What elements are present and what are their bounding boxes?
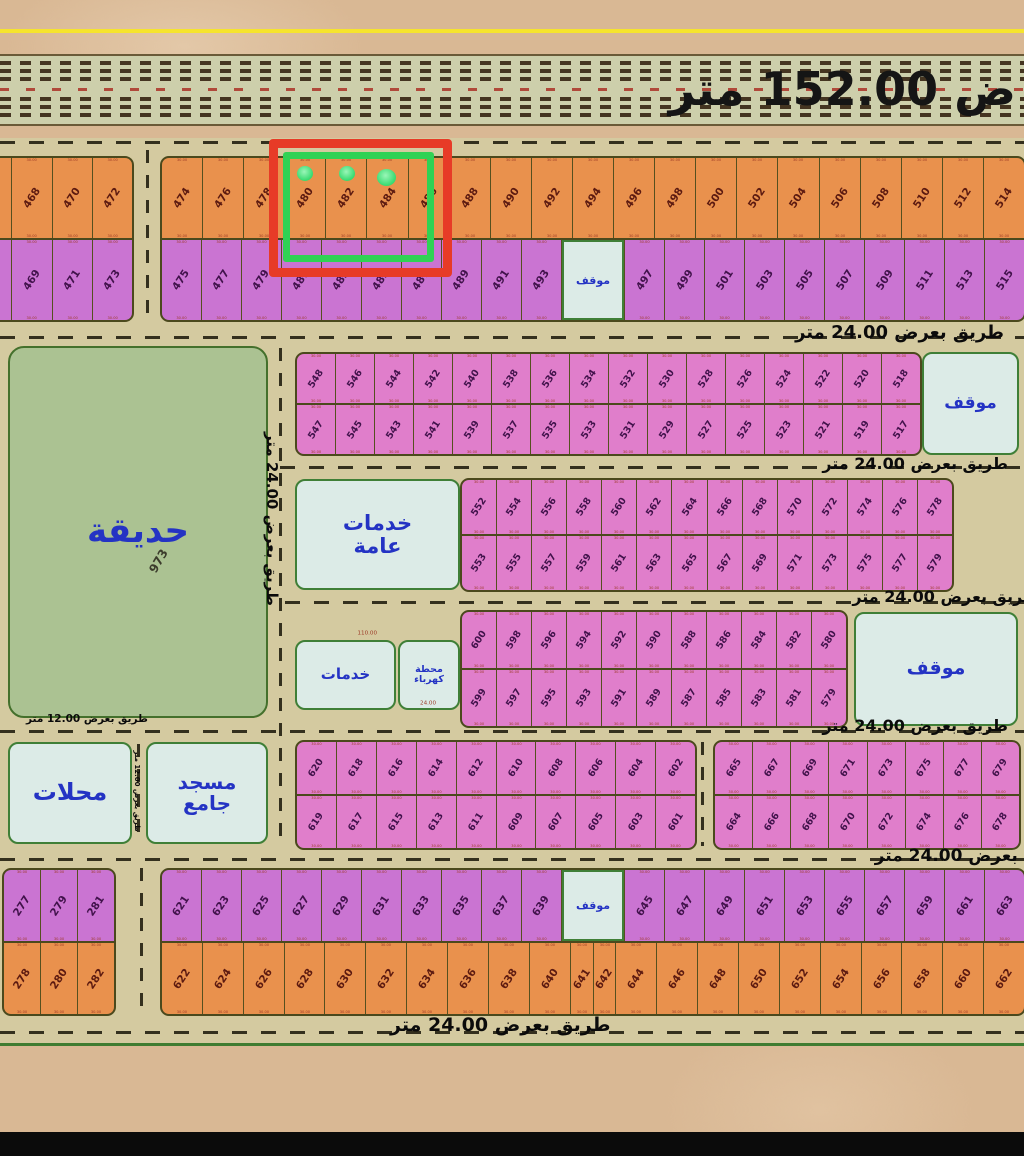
plot-594[interactable]: 30.0059430.00 bbox=[567, 612, 602, 668]
plot-543[interactable]: 30.0054330.00 bbox=[375, 405, 414, 454]
plot-555[interactable]: 30.0055530.00 bbox=[497, 536, 532, 590]
plot-506[interactable]: 30.0050630.00 bbox=[820, 158, 861, 238]
plot-629[interactable]: 30.0062930.00 bbox=[322, 870, 362, 941]
plot-620[interactable]: 30.0062030.00 bbox=[297, 742, 337, 794]
plot-469[interactable]: 30.0046930.00 bbox=[12, 240, 52, 320]
plot-number: 556 bbox=[539, 496, 559, 519]
plot-dimension: 30.00 bbox=[250, 316, 273, 320]
plot-edge[interactable]: 30.0030.00 bbox=[0, 158, 12, 238]
plot-547[interactable]: 30.0054730.00 bbox=[297, 405, 336, 454]
plot-row: 30.0062130.0030.0062330.0030.0062530.003… bbox=[162, 870, 1024, 943]
plot-596[interactable]: 30.0059630.00 bbox=[532, 612, 567, 668]
plot-dimension: 30.00 bbox=[749, 612, 769, 616]
plot-dimension: 30.00 bbox=[812, 399, 835, 403]
plot-number: 633 bbox=[410, 893, 432, 918]
plot-number: 644 bbox=[625, 966, 647, 991]
plot-536[interactable]: 30.0053630.00 bbox=[531, 354, 570, 403]
plot-dimension: 30.00 bbox=[490, 937, 513, 941]
plot-616[interactable]: 30.0061630.00 bbox=[377, 742, 417, 794]
plot-560[interactable]: 30.0056030.00 bbox=[602, 480, 637, 534]
plot-row: 30.0054730.0030.0054530.0030.0054330.003… bbox=[297, 405, 920, 454]
plot-545[interactable]: 30.0054530.00 bbox=[336, 405, 375, 454]
plot-dimension: 30.00 bbox=[0, 234, 3, 238]
plot-552[interactable]: 30.0055230.00 bbox=[462, 480, 497, 534]
plot-number: 507 bbox=[834, 268, 856, 293]
plot-589[interactable]: 30.0058930.00 bbox=[637, 670, 672, 726]
plot-dimension: 30.00 bbox=[951, 796, 973, 800]
plot-518[interactable]: 30.0051830.00 bbox=[882, 354, 920, 403]
plot-558[interactable]: 30.0055830.00 bbox=[567, 480, 602, 534]
plot-675[interactable]: 30.0067530.00 bbox=[906, 742, 944, 794]
plot-649[interactable]: 30.0064930.00 bbox=[705, 870, 745, 941]
plot-538[interactable]: 30.0053830.00 bbox=[492, 354, 531, 403]
plot-number: 629 bbox=[330, 893, 352, 918]
plot-496[interactable]: 30.0049630.00 bbox=[614, 158, 655, 238]
plot-548[interactable]: 30.0054830.00 bbox=[297, 354, 336, 403]
plot-number: 278 bbox=[11, 966, 33, 991]
plot-642[interactable]: 30.0064230.00 bbox=[594, 943, 617, 1014]
parking-area[interactable]: موقف bbox=[562, 870, 625, 941]
plot-546[interactable]: 30.0054630.00 bbox=[336, 354, 375, 403]
plot-612[interactable]: 30.0061230.00 bbox=[457, 742, 497, 794]
plot-621[interactable]: 30.0062130.00 bbox=[162, 870, 202, 941]
plot-678[interactable]: 30.0067830.00 bbox=[982, 796, 1019, 848]
plot-dimension: 30.00 bbox=[784, 612, 804, 616]
plot-646[interactable]: 30.0064630.00 bbox=[657, 943, 698, 1014]
plot-501[interactable]: 30.0050130.00 bbox=[705, 240, 745, 320]
power-station-area[interactable]: محطة كهرباء 24.00 bbox=[398, 640, 460, 710]
plot-522[interactable]: 30.0052230.00 bbox=[804, 354, 843, 403]
plot-659[interactable]: 30.0065930.00 bbox=[905, 870, 945, 941]
plot-dimension: 30.00 bbox=[722, 790, 744, 794]
plot-650[interactable]: 30.0065030.00 bbox=[739, 943, 780, 1014]
plot-number: 281 bbox=[85, 893, 107, 918]
plot-505[interactable]: 30.0050530.00 bbox=[785, 240, 825, 320]
services-area[interactable]: خدمات bbox=[295, 640, 396, 710]
plot-655[interactable]: 30.0065530.00 bbox=[825, 870, 865, 941]
plot-567[interactable]: 30.0056730.00 bbox=[708, 536, 743, 590]
plot-627[interactable]: 30.0062730.00 bbox=[282, 870, 322, 941]
plot-625[interactable]: 30.0062530.00 bbox=[242, 870, 282, 941]
plot-488[interactable]: 30.0048830.00 bbox=[450, 158, 491, 238]
plot-656[interactable]: 30.0065630.00 bbox=[862, 943, 903, 1014]
plot-dimension: 30.00 bbox=[925, 480, 945, 484]
plot-477[interactable]: 30.0047730.00 bbox=[202, 240, 242, 320]
plot-dimension: 30.00 bbox=[786, 234, 810, 238]
plot-677[interactable]: 30.0067730.00 bbox=[944, 742, 982, 794]
plot-dimension: 30.00 bbox=[211, 234, 235, 238]
plot-row: 30.0066530.0030.0066730.0030.0066930.003… bbox=[715, 742, 1019, 796]
plot-498[interactable]: 30.0049830.00 bbox=[655, 158, 696, 238]
plot-581[interactable]: 30.0058130.00 bbox=[777, 670, 812, 726]
plot-dimension: 30.00 bbox=[785, 480, 805, 484]
plot-580[interactable]: 30.0058030.00 bbox=[812, 612, 846, 668]
plot-553[interactable]: 30.0055330.00 bbox=[462, 536, 497, 590]
plot-282[interactable]: 30.0028230.00 bbox=[78, 943, 114, 1014]
plot-540[interactable]: 30.0054030.00 bbox=[453, 354, 492, 403]
plot-490[interactable]: 30.0049030.00 bbox=[491, 158, 532, 238]
plot-number: 612 bbox=[466, 757, 486, 780]
plot-509[interactable]: 30.0050930.00 bbox=[865, 240, 905, 320]
plot-dimension: 30.00 bbox=[713, 870, 736, 874]
plot-653[interactable]: 30.0065330.00 bbox=[785, 870, 825, 941]
plot-665[interactable]: 30.0066530.00 bbox=[715, 742, 753, 794]
plot-557[interactable]: 30.0055730.00 bbox=[532, 536, 567, 590]
plot-281[interactable]: 30.0028130.00 bbox=[78, 870, 114, 941]
plot-number: 590 bbox=[644, 629, 664, 652]
plot-595[interactable]: 30.0059530.00 bbox=[532, 670, 567, 726]
plot-663[interactable]: 30.0066330.00 bbox=[985, 870, 1024, 941]
plot-dimension: 30.00 bbox=[581, 158, 605, 162]
plot-634[interactable]: 30.0063430.00 bbox=[407, 943, 448, 1014]
plot-dimension: 30.00 bbox=[722, 844, 744, 848]
plot-dimension: 30.00 bbox=[290, 316, 313, 320]
shops-area[interactable]: محلات bbox=[8, 742, 132, 844]
power-dimension: 24.00 bbox=[420, 700, 436, 706]
plot-468[interactable]: 30.0046830.00 bbox=[12, 158, 52, 238]
plot-662[interactable]: 30.0066230.00 bbox=[984, 943, 1024, 1014]
plot-521[interactable]: 30.0052130.00 bbox=[804, 405, 843, 454]
plot-277[interactable]: 30.0027730.00 bbox=[4, 870, 41, 941]
plot-648[interactable]: 30.0064830.00 bbox=[698, 943, 739, 1014]
plot-559[interactable]: 30.0055930.00 bbox=[567, 536, 602, 590]
plot-654[interactable]: 30.0065430.00 bbox=[821, 943, 862, 1014]
plot-565[interactable]: 30.0056530.00 bbox=[672, 536, 707, 590]
plot-592[interactable]: 30.0059230.00 bbox=[602, 612, 637, 668]
plot-number: 598 bbox=[504, 629, 524, 652]
plot-502[interactable]: 30.0050230.00 bbox=[737, 158, 778, 238]
plot-number: 603 bbox=[626, 811, 646, 834]
plot-630[interactable]: 30.0063030.00 bbox=[325, 943, 366, 1014]
plot-dimension: 30.00 bbox=[953, 937, 976, 941]
plot-dimension: 30.00 bbox=[617, 399, 640, 403]
plot-572[interactable]: 30.0057230.00 bbox=[813, 480, 848, 534]
plot-539[interactable]: 30.0053930.00 bbox=[453, 405, 492, 454]
plot-number: 669 bbox=[800, 757, 820, 780]
plot-515[interactable]: 30.0051530.00 bbox=[985, 240, 1024, 320]
plot-number: 584 bbox=[749, 629, 769, 652]
plot-dimension: 30.00 bbox=[624, 796, 647, 800]
plot-566[interactable]: 30.0056630.00 bbox=[708, 480, 743, 534]
plot-520[interactable]: 30.0052030.00 bbox=[843, 354, 882, 403]
plot-dimension: 30.00 bbox=[753, 937, 776, 941]
plot-500[interactable]: 30.0050030.00 bbox=[696, 158, 737, 238]
plot-658[interactable]: 30.0065830.00 bbox=[902, 943, 943, 1014]
plot-511[interactable]: 30.0051130.00 bbox=[905, 240, 945, 320]
plot-541[interactable]: 30.0054130.00 bbox=[414, 405, 453, 454]
plot-dimension: 30.00 bbox=[170, 158, 194, 162]
plot-618[interactable]: 30.0061830.00 bbox=[337, 742, 377, 794]
plot-562[interactable]: 30.0056230.00 bbox=[637, 480, 672, 534]
plot-636[interactable]: 30.0063630.00 bbox=[448, 943, 489, 1014]
plot-523[interactable]: 30.0052330.00 bbox=[765, 405, 804, 454]
mosque-area[interactable]: مسجد جامع bbox=[146, 742, 268, 844]
plot-493[interactable]: 30.0049330.00 bbox=[522, 240, 562, 320]
plot-number: 524 bbox=[774, 367, 794, 390]
plot-number: 646 bbox=[666, 966, 688, 991]
plot-623[interactable]: 30.0062330.00 bbox=[202, 870, 242, 941]
plot-dimension: 30.00 bbox=[622, 234, 646, 238]
plot-673[interactable]: 30.0067330.00 bbox=[868, 742, 906, 794]
plot-number: 537 bbox=[501, 418, 521, 441]
plot-528[interactable]: 30.0052830.00 bbox=[687, 354, 726, 403]
plot-640[interactable]: 30.0064030.00 bbox=[530, 943, 571, 1014]
plot-475[interactable]: 30.0047530.00 bbox=[162, 240, 202, 320]
plot-626[interactable]: 30.0062630.00 bbox=[244, 943, 285, 1014]
plot-668[interactable]: 30.0066830.00 bbox=[791, 796, 829, 848]
plot-512[interactable]: 30.0051230.00 bbox=[943, 158, 984, 238]
plot-number: 600 bbox=[469, 629, 489, 652]
plot-494[interactable]: 30.0049430.00 bbox=[573, 158, 614, 238]
plot-474[interactable]: 30.0047430.00 bbox=[162, 158, 203, 238]
plot-619[interactable]: 30.0061930.00 bbox=[297, 796, 337, 848]
plot-617[interactable]: 30.0061730.00 bbox=[337, 796, 377, 848]
plot-666[interactable]: 30.0066630.00 bbox=[753, 796, 791, 848]
plot-588[interactable]: 30.0058830.00 bbox=[672, 612, 707, 668]
park-area[interactable]: حديقة 973 bbox=[8, 346, 268, 718]
parking-area[interactable]: موقف bbox=[922, 352, 1019, 455]
plot-dimension: 30.00 bbox=[461, 354, 484, 358]
public-services-area[interactable]: خدمات عامة bbox=[295, 479, 460, 590]
plot-568[interactable]: 30.0056830.00 bbox=[743, 480, 778, 534]
plot-number: 567 bbox=[715, 552, 735, 575]
plot-578[interactable]: 30.0057830.00 bbox=[918, 480, 952, 534]
parking-area[interactable]: موقف bbox=[562, 240, 625, 320]
plot-530[interactable]: 30.0053030.00 bbox=[648, 354, 687, 403]
plot-dimension: 30.00 bbox=[624, 1010, 648, 1014]
plot-628[interactable]: 30.0062830.00 bbox=[285, 943, 326, 1014]
plot-517[interactable]: 30.0051730.00 bbox=[882, 405, 920, 454]
plot-582[interactable]: 30.0058230.00 bbox=[777, 612, 812, 668]
plot-556[interactable]: 30.0055630.00 bbox=[532, 480, 567, 534]
plot-651[interactable]: 30.0065130.00 bbox=[745, 870, 785, 941]
plot-491[interactable]: 30.0049130.00 bbox=[482, 240, 522, 320]
plot-524[interactable]: 30.0052430.00 bbox=[765, 354, 804, 403]
plot-529[interactable]: 30.0052930.00 bbox=[648, 405, 687, 454]
plot-613[interactable]: 30.0061330.00 bbox=[417, 796, 457, 848]
plot-671[interactable]: 30.0067130.00 bbox=[829, 742, 867, 794]
plot-591[interactable]: 30.0059130.00 bbox=[602, 670, 637, 726]
plot-527[interactable]: 30.0052730.00 bbox=[687, 405, 726, 454]
plot-280[interactable]: 30.0028030.00 bbox=[41, 943, 78, 1014]
plot-570[interactable]: 30.0057030.00 bbox=[778, 480, 813, 534]
plot-499[interactable]: 30.0049930.00 bbox=[665, 240, 705, 320]
plot-615[interactable]: 30.0061530.00 bbox=[377, 796, 417, 848]
plot-503[interactable]: 30.0050330.00 bbox=[745, 240, 785, 320]
plot-647[interactable]: 30.0064730.00 bbox=[665, 870, 705, 941]
plot-532[interactable]: 30.0053230.00 bbox=[609, 354, 648, 403]
plot-607[interactable]: 30.0060730.00 bbox=[536, 796, 576, 848]
plot-472[interactable]: 30.0047230.00 bbox=[93, 158, 132, 238]
plot-601[interactable]: 30.0060130.00 bbox=[656, 796, 695, 848]
plot-497[interactable]: 30.0049730.00 bbox=[625, 240, 665, 320]
plot-dimension: 30.00 bbox=[469, 722, 489, 726]
plot-575[interactable]: 30.0057530.00 bbox=[848, 536, 883, 590]
plot-635[interactable]: 30.0063530.00 bbox=[442, 870, 482, 941]
plot-473[interactable]: 30.0047330.00 bbox=[93, 240, 132, 320]
plot-534[interactable]: 30.0053430.00 bbox=[570, 354, 609, 403]
plot-510[interactable]: 30.0051030.00 bbox=[902, 158, 943, 238]
plot-508[interactable]: 30.0050830.00 bbox=[861, 158, 902, 238]
plot-dimension: 30.00 bbox=[0, 158, 3, 162]
plot-number: 568 bbox=[750, 496, 770, 519]
plot-674[interactable]: 30.0067430.00 bbox=[906, 796, 944, 848]
plot-dimension: 30.00 bbox=[873, 937, 896, 941]
plot-631[interactable]: 30.0063130.00 bbox=[362, 870, 402, 941]
plot-609[interactable]: 30.0060930.00 bbox=[497, 796, 537, 848]
plot-526[interactable]: 30.0052630.00 bbox=[726, 354, 765, 403]
plot-577[interactable]: 30.0057730.00 bbox=[883, 536, 918, 590]
plot-507[interactable]: 30.0050730.00 bbox=[825, 240, 865, 320]
plot-dimension: 30.00 bbox=[539, 405, 562, 409]
parking-area[interactable]: موقف bbox=[854, 612, 1018, 726]
plot-587[interactable]: 30.0058730.00 bbox=[672, 670, 707, 726]
plot-652[interactable]: 30.0065230.00 bbox=[780, 943, 821, 1014]
plot-638[interactable]: 30.0063830.00 bbox=[489, 943, 530, 1014]
plot-dimension: 30.00 bbox=[673, 937, 696, 941]
plot-513[interactable]: 30.0051330.00 bbox=[945, 240, 985, 320]
plot-number: 472 bbox=[101, 186, 123, 211]
plot-633[interactable]: 30.0063330.00 bbox=[402, 870, 442, 941]
plot-number: 572 bbox=[820, 496, 840, 519]
plot-dimension: 30.00 bbox=[101, 158, 125, 162]
plot-number: 658 bbox=[911, 966, 933, 991]
plot-544[interactable]: 30.0054430.00 bbox=[375, 354, 414, 403]
plot-637[interactable]: 30.0063730.00 bbox=[482, 870, 522, 941]
plot-dimension: 30.00 bbox=[875, 790, 897, 794]
plot-639[interactable]: 30.0063930.00 bbox=[522, 870, 562, 941]
plot-641[interactable]: 30.0064130.00 bbox=[571, 943, 594, 1014]
plot-590[interactable]: 30.0059030.00 bbox=[637, 612, 672, 668]
plot-dimension: 30.00 bbox=[539, 399, 562, 403]
plot-569[interactable]: 30.0056930.00 bbox=[743, 536, 778, 590]
plot-605[interactable]: 30.0060530.00 bbox=[576, 796, 616, 848]
plot-dimension: 30.00 bbox=[679, 612, 699, 616]
plot-669[interactable]: 30.0066930.00 bbox=[791, 742, 829, 794]
plot-dimension: 30.00 bbox=[85, 943, 107, 947]
plot-576[interactable]: 30.0057630.00 bbox=[883, 480, 918, 534]
plot-586[interactable]: 30.0058630.00 bbox=[707, 612, 742, 668]
plot-533[interactable]: 30.0053330.00 bbox=[570, 405, 609, 454]
plot-644[interactable]: 30.0064430.00 bbox=[616, 943, 657, 1014]
plot-604[interactable]: 30.0060430.00 bbox=[616, 742, 656, 794]
plot-614[interactable]: 30.0061430.00 bbox=[417, 742, 457, 794]
plot-602[interactable]: 30.0060230.00 bbox=[656, 742, 695, 794]
plot-661[interactable]: 30.0066130.00 bbox=[945, 870, 985, 941]
plot-564[interactable]: 30.0056430.00 bbox=[672, 480, 707, 534]
plot-676[interactable]: 30.0067630.00 bbox=[944, 796, 982, 848]
plot-471[interactable]: 30.0047130.00 bbox=[53, 240, 93, 320]
plot-525[interactable]: 30.0052530.00 bbox=[726, 405, 765, 454]
plot-535[interactable]: 30.0053530.00 bbox=[531, 405, 570, 454]
plot-dimension: 30.00 bbox=[450, 316, 473, 320]
plot-624[interactable]: 30.0062430.00 bbox=[203, 943, 244, 1014]
plot-dimension: 30.00 bbox=[170, 870, 193, 874]
plot-679[interactable]: 30.0067930.00 bbox=[982, 742, 1019, 794]
plot-dimension: 30.00 bbox=[499, 234, 523, 238]
plot-593[interactable]: 30.0059330.00 bbox=[567, 670, 602, 726]
plot-583[interactable]: 30.0058330.00 bbox=[742, 670, 777, 726]
plot-number: 652 bbox=[789, 966, 811, 991]
plot-585[interactable]: 30.0058530.00 bbox=[707, 670, 742, 726]
plot-edge[interactable]: 30.0030.00 bbox=[0, 240, 12, 320]
plot-660[interactable]: 30.0066030.00 bbox=[943, 943, 984, 1014]
plot-dimension: 30.00 bbox=[870, 1010, 894, 1014]
plot-number: 548 bbox=[306, 367, 326, 390]
plot-606[interactable]: 30.0060630.00 bbox=[576, 742, 616, 794]
plot-dimension: 30.00 bbox=[170, 1010, 194, 1014]
plot-608[interactable]: 30.0060830.00 bbox=[536, 742, 576, 794]
plot-514[interactable]: 30.0051430.00 bbox=[984, 158, 1024, 238]
block-5b: 30.0066530.0030.0066730.0030.0066930.003… bbox=[713, 740, 1021, 850]
plot-573[interactable]: 30.0057330.00 bbox=[813, 536, 848, 590]
plot-dimension: 30.00 bbox=[773, 405, 796, 409]
plot-dimension: 30.00 bbox=[951, 943, 975, 947]
plot-279[interactable]: 30.0027930.00 bbox=[41, 870, 78, 941]
plot-dimension: 30.00 bbox=[951, 790, 973, 794]
road-dashes bbox=[140, 868, 143, 1012]
plot-611[interactable]: 30.0061130.00 bbox=[457, 796, 497, 848]
plot-584[interactable]: 30.0058430.00 bbox=[742, 612, 777, 668]
plot-603[interactable]: 30.0060330.00 bbox=[616, 796, 656, 848]
plot-dimension: 30.00 bbox=[330, 937, 353, 941]
plot-number: 591 bbox=[609, 687, 629, 710]
plot-492[interactable]: 30.0049230.00 bbox=[532, 158, 573, 238]
plot-number: 595 bbox=[539, 687, 559, 710]
plot-664[interactable]: 30.0066430.00 bbox=[715, 796, 753, 848]
plot-number: 675 bbox=[914, 757, 934, 780]
plot-561[interactable]: 30.0056130.00 bbox=[602, 536, 637, 590]
plot-598[interactable]: 30.0059830.00 bbox=[497, 612, 532, 668]
plot-537[interactable]: 30.0053730.00 bbox=[492, 405, 531, 454]
plot-622[interactable]: 30.0062230.00 bbox=[162, 943, 203, 1014]
plot-542[interactable]: 30.0054230.00 bbox=[414, 354, 453, 403]
plot-519[interactable]: 30.0051930.00 bbox=[843, 405, 882, 454]
plot-dimension: 30.00 bbox=[993, 870, 1016, 874]
plot-476[interactable]: 30.0047630.00 bbox=[203, 158, 244, 238]
plot-number: 560 bbox=[609, 496, 629, 519]
plot-number: 602 bbox=[666, 757, 686, 780]
plot-632[interactable]: 30.0063230.00 bbox=[366, 943, 407, 1014]
plot-597[interactable]: 30.0059730.00 bbox=[497, 670, 532, 726]
plot-number: 677 bbox=[952, 757, 972, 780]
plot-610[interactable]: 30.0061030.00 bbox=[497, 742, 537, 794]
plot-563[interactable]: 30.0056330.00 bbox=[637, 536, 672, 590]
plot-dimension: 30.00 bbox=[344, 450, 367, 454]
plot-554[interactable]: 30.0055430.00 bbox=[497, 480, 532, 534]
plot-579[interactable]: 30.0057930.00 bbox=[918, 536, 952, 590]
plot-657[interactable]: 30.0065730.00 bbox=[865, 870, 905, 941]
plot-599[interactable]: 30.0059930.00 bbox=[462, 670, 497, 726]
plot-531[interactable]: 30.0053130.00 bbox=[609, 405, 648, 454]
plot-504[interactable]: 30.0050430.00 bbox=[778, 158, 819, 238]
plot-470[interactable]: 30.0047030.00 bbox=[53, 158, 93, 238]
plot-number: 631 bbox=[370, 893, 392, 918]
plot-574[interactable]: 30.0057430.00 bbox=[848, 480, 883, 534]
plot-number: 662 bbox=[993, 966, 1015, 991]
plot-dimension: 30.00 bbox=[458, 234, 482, 238]
plot-667[interactable]: 30.0066730.00 bbox=[753, 742, 791, 794]
plot-dimension: 30.00 bbox=[101, 240, 125, 244]
plot-645[interactable]: 30.0064530.00 bbox=[625, 870, 665, 941]
plot-number: 620 bbox=[306, 757, 326, 780]
plot-278[interactable]: 30.0027830.00 bbox=[4, 943, 41, 1014]
plot-672[interactable]: 30.0067230.00 bbox=[868, 796, 906, 848]
plot-600[interactable]: 30.0060030.00 bbox=[462, 612, 497, 668]
plot-670[interactable]: 30.0067030.00 bbox=[829, 796, 867, 848]
plot-number: 566 bbox=[715, 496, 735, 519]
plot-571[interactable]: 30.0057130.00 bbox=[778, 536, 813, 590]
